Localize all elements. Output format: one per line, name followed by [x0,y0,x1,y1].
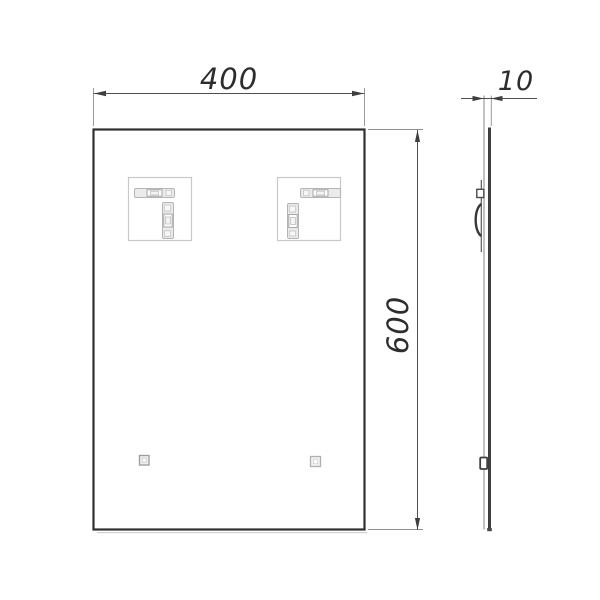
technical-drawing: 400 600 10 [0,0,600,600]
arrowhead-bottom [415,518,420,530]
bracket-slot-mark [317,191,325,195]
bracket-plate [129,178,192,241]
clip-side-profile [480,458,487,470]
arrowhead-top [415,130,420,142]
mounting-bracket-left [129,178,192,241]
width-dimension-label: 400 [200,62,258,96]
arrowhead-left [473,96,484,101]
fixing-clip-right [311,457,321,467]
height-dimension-label: 600 [381,296,415,354]
fixing-clip-left [140,456,150,466]
arrowhead-left [94,91,106,96]
width-dimension: 400 [94,62,365,126]
bracket-slot-notch [164,205,170,211]
side-view [476,96,492,532]
front-view [94,130,368,533]
clip-inner [142,458,146,462]
bracket-slot-mark [291,218,296,225]
thickness-dimension-label: 10 [498,66,534,97]
bracket-side-bulge [476,204,482,236]
bracket-slot-notch [289,206,295,212]
bracket-slot-mark [166,217,171,224]
bracket-side-tab [477,189,484,197]
bracket-slot-mark [151,191,159,195]
mounting-bracket-right [278,178,341,241]
bracket-slot-notch [289,231,295,236]
bracket-plate [278,178,341,241]
height-dimension: 600 [368,130,423,531]
bracket-slot-notch [304,190,310,195]
bracket-side-profile [476,180,484,252]
arrowhead-right [352,91,364,96]
drawing-canvas: 400 600 10 [0,0,600,600]
thickness-dimension: 10 [461,66,537,101]
mirror-side-bottom-edge [487,528,492,531]
clip-inner [313,459,317,463]
bracket-slot-notch [166,190,172,195]
bracket-slot-notch [164,231,170,237]
